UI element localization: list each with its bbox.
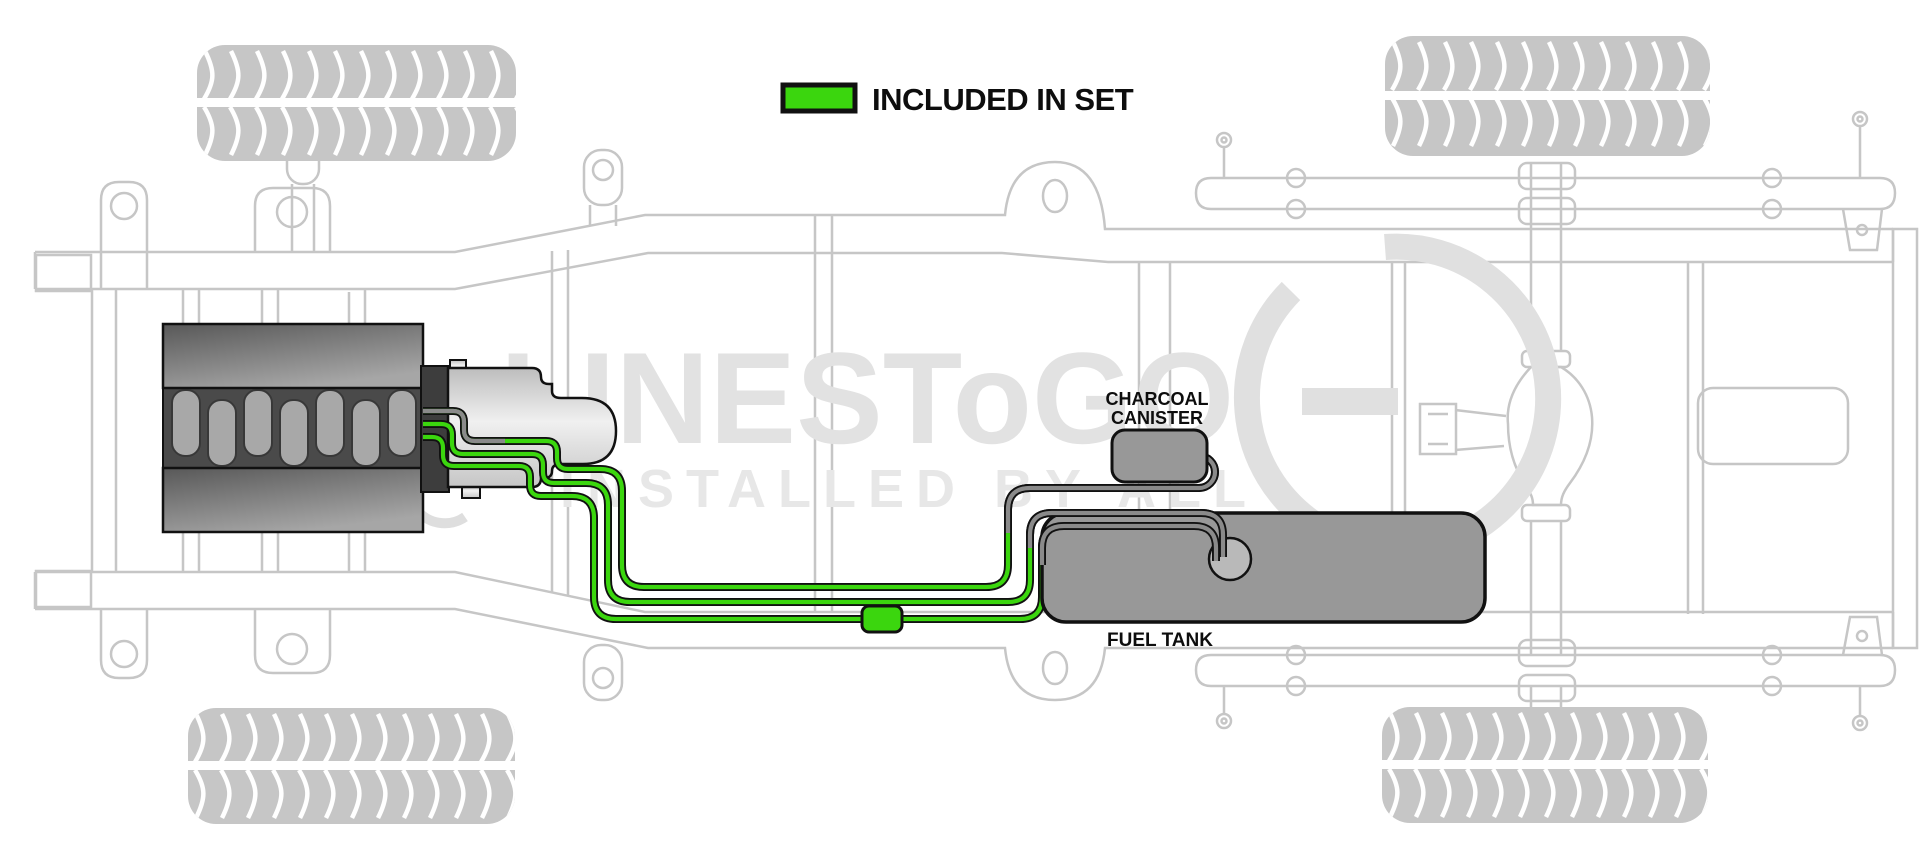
driveshaft-flange: [1420, 404, 1456, 454]
tire-front-right: [1385, 36, 1710, 156]
engine-bank-bottom: [163, 468, 423, 532]
engine-bank-top: [163, 324, 423, 388]
fuel-line-connector: [862, 606, 902, 632]
tire-rear-right: [1382, 707, 1708, 823]
legend: INCLUDED IN SET: [783, 82, 1134, 117]
charcoal-canister-label-line2: CANISTER: [1111, 408, 1203, 428]
watermark-ring-arc: [1385, 247, 1548, 545]
legend-label: INCLUDED IN SET: [872, 82, 1134, 117]
legend-swatch: [783, 85, 855, 111]
rear-crossmember: [1698, 388, 1848, 464]
fuel-tank-label: FUEL TANK: [1107, 630, 1213, 651]
engine: [163, 324, 449, 532]
charcoal-canister: [1112, 430, 1207, 482]
fuel-line-diagram: LINESToGO INSTALLED BY ALL: [0, 0, 1930, 841]
bell-housing: [421, 366, 449, 492]
charcoal-canister-label-line1: CHARCOAL: [1106, 389, 1209, 409]
tire-rear-left: [188, 708, 515, 824]
tire-front-left: [197, 45, 516, 161]
diagram-canvas: LINESToGO INSTALLED BY ALL: [0, 0, 1930, 841]
body-mount-hole: [1043, 180, 1067, 212]
